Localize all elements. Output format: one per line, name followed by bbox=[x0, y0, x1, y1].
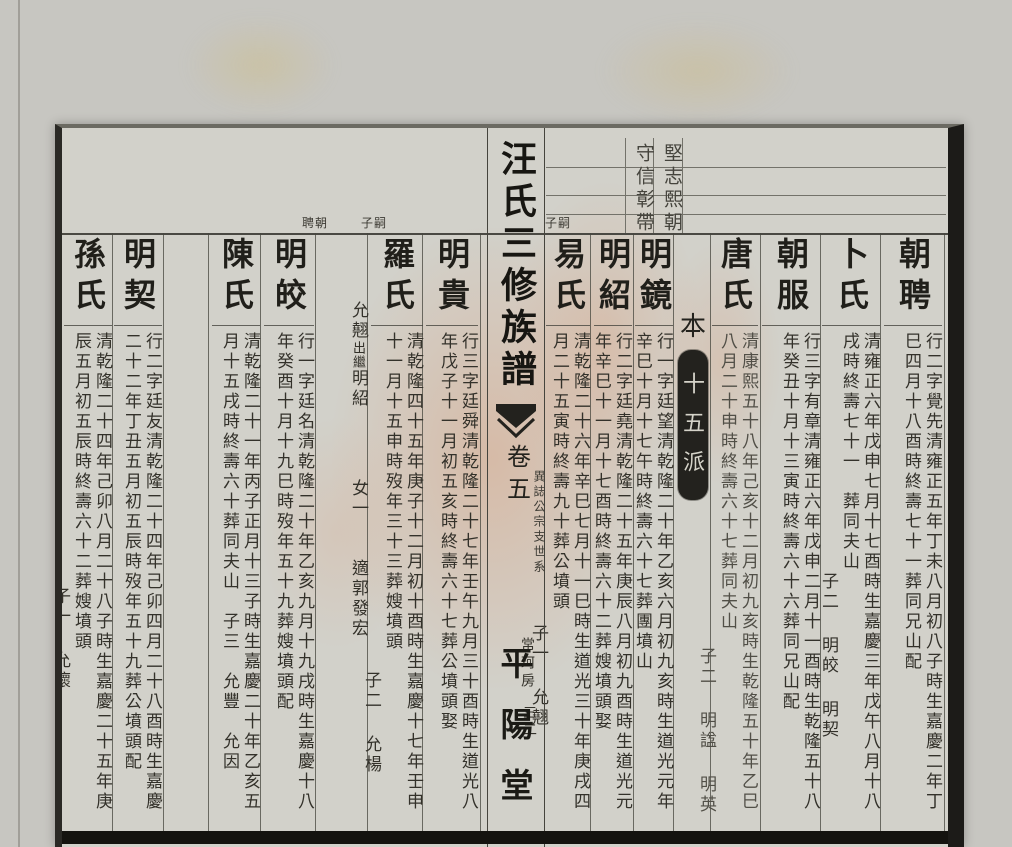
entry-column: 清康熙五十八年己亥十二月初九亥時生乾隆五十年乙巳 bbox=[738, 332, 758, 824]
issue-name: 明契 bbox=[819, 700, 838, 740]
entry-column: 清雍正六年戊申七月十七酉時生嘉慶三年戊午八月十八 bbox=[860, 332, 880, 824]
person-name: 明鏡 bbox=[631, 237, 677, 325]
father-label: 朝聘 bbox=[302, 214, 328, 231]
column-rule bbox=[260, 233, 261, 831]
entry-column: 辛巳十月十七午時終壽六十七葬團墳山 bbox=[632, 332, 652, 824]
entry-column: 辰五月初五辰時終壽六十二葬嫂墳頭 bbox=[71, 332, 91, 824]
column-rule bbox=[480, 233, 481, 831]
volume-label: 卷五 bbox=[499, 444, 534, 508]
hall-name: 平陽堂 bbox=[489, 646, 537, 829]
person-entry: 羅氏 清乾隆四十五年庚子十二月初十酉時生嘉慶十七年壬申 十一月十五申時歿年三十三… bbox=[371, 237, 423, 831]
person-entry: 唐氏 清康熙五十八年己亥十二月初九亥時生乾隆五十年乙巳 八月二十申時終壽六十七葬… bbox=[712, 237, 758, 831]
header-rule bbox=[625, 138, 626, 233]
generation-prefix: 本 bbox=[675, 306, 711, 343]
scan-stain bbox=[600, 20, 795, 122]
entry-column: 清乾隆四十五年庚子十二月初十酉時生嘉慶十七年壬申 bbox=[403, 332, 423, 824]
entry-column: 月二十五寅時終壽九十葬公墳頭 bbox=[549, 332, 569, 824]
person-name: 明皎 bbox=[266, 237, 312, 325]
person-entry: 明皎 行一字廷名清乾隆二十年乙亥九月十九戌時生嘉慶十八 年癸酉十月十九巳時歿年五… bbox=[264, 237, 314, 831]
page-frame: 堅志熙朝 守信彰帶 嗣子 嗣子 朝聘 朝聘 bbox=[55, 124, 964, 847]
header-rule bbox=[546, 195, 946, 196]
entry-column: 年戊子十一月初五亥時終壽六十七葬公墳頭娶 bbox=[437, 332, 457, 824]
entry-column: 八月二十申時終壽六十七葬同夫山 bbox=[717, 332, 737, 824]
person-entry: 明契 行二字廷友清乾隆二十四年己卯四月二十八酉時生嘉慶 二十二年丁丑五月初五辰時… bbox=[114, 237, 162, 831]
generation-motto-right: 堅志熙朝 bbox=[658, 143, 685, 235]
person-entry: 明紹 行二字廷堯清乾隆二十五年庚辰八月初九酉時生道光元 年辛巳十一月十七酉時終壽… bbox=[594, 237, 632, 831]
column-rule bbox=[315, 233, 316, 831]
person-name: 明紹 bbox=[590, 237, 636, 325]
generation-motto-left: 守信彰帶 bbox=[630, 143, 657, 235]
book-title: 汪氏三修族譜 bbox=[490, 140, 542, 392]
entry-column: 行二字覺先清雍正五年丁未八月初八子時生嘉慶二年丁 bbox=[922, 332, 942, 824]
daughter-label: 女一 bbox=[349, 479, 368, 519]
issue-name: 允懷 bbox=[62, 651, 70, 691]
person-entry: 易氏 清乾隆二十六年辛巳七月十一巳時生道光三十年庚戌四 月二十五寅時終壽九十葬公… bbox=[546, 237, 590, 831]
person-entry: 明鏡 行一字廷望清乾隆二十年乙亥六月初九亥時生道光元年 辛巳十月十七午時終壽六十… bbox=[635, 237, 673, 831]
entry-column: 年癸酉十月十九巳時歿年五十九葬嫂墳頭配 bbox=[273, 332, 293, 824]
person-name: 陳氏 bbox=[213, 237, 259, 325]
entry-column: 十一月十五申時歿年三十三葬嫂墳頭 bbox=[382, 332, 402, 824]
person-entry: 陳氏 清乾隆二十一年丙子正月十三子時生嘉慶二十年乙亥五 月十五戌時終壽六十葬同夫… bbox=[212, 237, 260, 831]
entry-column: 行三字廷舜清乾隆二十七年壬午九月三十酉時生道光八 bbox=[458, 332, 478, 824]
generation-seal: 十五派 bbox=[678, 350, 708, 500]
issue-name: 明英 bbox=[697, 775, 716, 815]
entry-column: 月十五戌時終壽六十葬同夫山 子三 允豐 允因 bbox=[219, 332, 239, 824]
heir-out-name: 允翹 bbox=[349, 301, 368, 341]
daughter-marriage: 適郭發宏 bbox=[349, 559, 368, 639]
person-entry: 朝服 行三字有章清雍正六年戊申二月十一酉時生乾隆五十八 年癸丑十月十三寅時終壽六… bbox=[762, 237, 820, 831]
entry-column: 允翹出繼明紹女一適郭發宏 bbox=[348, 301, 368, 825]
entry-column: 行一字廷望清乾隆二十年乙亥六月初九亥時生道光元年 bbox=[653, 332, 673, 824]
header-rule bbox=[546, 214, 946, 215]
entry-column: 清乾隆二十四年己卯八月二十八子時生嘉慶二十五年庚 bbox=[92, 332, 112, 824]
person-name: 唐氏 bbox=[712, 237, 758, 325]
entry-column: 行三字有章清雍正六年戊申二月十一酉時生乾隆五十八 bbox=[800, 332, 820, 824]
column-rule bbox=[880, 233, 881, 831]
column-rule bbox=[760, 233, 761, 831]
person-name: 朝服 bbox=[768, 237, 814, 325]
header-rule bbox=[546, 167, 946, 168]
entry-issue: 子一允懷 bbox=[62, 332, 70, 824]
spine: 汪氏三修族譜 卷五 異誌公宗支世系 常珂房 三二 平陽堂 bbox=[487, 128, 545, 847]
person-entry: 孫氏 清乾隆二十四年己卯八月二十八子時生嘉慶二十五年庚 辰五月初五辰時終壽六十二… bbox=[64, 237, 112, 831]
lineage-label: 異誌公宗支世系 bbox=[531, 470, 548, 575]
column-rule bbox=[112, 233, 113, 831]
issue-name: 明諡 bbox=[697, 711, 716, 751]
column-rule bbox=[163, 233, 164, 831]
entry-column: 年辛巳十一月十七酉時終壽六十二葬嫂墳頭娶 bbox=[591, 332, 611, 824]
entry-continuation: 允翹出繼明紹女一適郭發宏 bbox=[330, 237, 368, 831]
person-name: 明貴 bbox=[429, 237, 475, 325]
entry-column: 行一字廷名清乾隆二十年乙亥九月十九戌時生嘉慶十八 bbox=[294, 332, 314, 824]
entry-column: 清乾隆二十六年辛巳七月十一巳時生道光三十年庚戌四 bbox=[570, 332, 590, 824]
entry-column: 清乾隆二十一年丙子正月十三子時生嘉慶二十年乙亥五 bbox=[240, 332, 260, 824]
generation-marker: 本 十五派 bbox=[675, 306, 711, 500]
person-entry: 卜氏 清雍正六年戊申七月十七酉時生嘉慶三年戊午八月十八 戌時終壽七十一 葬同夫山… bbox=[822, 237, 880, 831]
person-entry: 朝聘 行二字覺先清雍正五年丁未八月初八子時生嘉慶二年丁 巳四月十八酉時終壽七十一… bbox=[884, 237, 942, 831]
entry-column: 巳四月十八酉時終壽七十一葬同兄山配 bbox=[901, 332, 921, 824]
entry-column: 行二字廷堯清乾隆二十五年庚辰八月初九酉時生道光元 bbox=[612, 332, 632, 824]
heir-out-note: 出繼 bbox=[351, 341, 366, 369]
person-name: 羅氏 bbox=[374, 237, 420, 325]
page-content: 堅志熙朝 守信彰帶 嗣子 嗣子 朝聘 朝聘 bbox=[62, 128, 948, 847]
issue-label: 子二 bbox=[819, 572, 838, 612]
person-name: 明契 bbox=[115, 237, 161, 325]
book-edge-line bbox=[18, 0, 20, 847]
issue-label: 子二 bbox=[697, 647, 716, 687]
column-rule bbox=[944, 233, 945, 831]
person-name: 朝聘 bbox=[890, 237, 936, 325]
bottom-border-bar bbox=[62, 831, 948, 844]
column-rule bbox=[208, 233, 209, 831]
entry-column: 年癸丑十月十三寅時終壽六十六葬同兄山配 bbox=[779, 332, 799, 824]
person-name: 易氏 bbox=[545, 237, 591, 325]
heir-label: 嗣子 bbox=[545, 214, 571, 231]
issue-label: 子一 bbox=[62, 587, 70, 627]
heir-label: 嗣子 bbox=[361, 214, 387, 231]
genealogy-scan: 堅志熙朝 守信彰帶 嗣子 嗣子 朝聘 朝聘 bbox=[0, 0, 1012, 847]
person-name: 卜氏 bbox=[828, 237, 874, 325]
heir-out-target: 明紹 bbox=[349, 369, 368, 409]
entry-column: 戌時終壽七十一 葬同夫山 bbox=[839, 332, 859, 824]
fishtail-ornament bbox=[496, 404, 536, 445]
entry-column: 二十二年丁丑五月初五辰時歿年五十九葬公墳頭配 bbox=[121, 332, 141, 824]
issue-name: 明皎 bbox=[819, 636, 838, 676]
person-entry: 明貴 行三字廷舜清乾隆二十七年壬午九月三十酉時生道光八 年戊子十一月初五亥時終壽… bbox=[426, 237, 478, 831]
entry-column: 行二字廷友清乾隆二十四年己卯四月二十八酉時生嘉慶 bbox=[142, 332, 162, 824]
scan-stain bbox=[185, 16, 335, 114]
entry-issue: 子二明皎明契 bbox=[818, 332, 838, 824]
person-name: 孫氏 bbox=[65, 237, 111, 325]
